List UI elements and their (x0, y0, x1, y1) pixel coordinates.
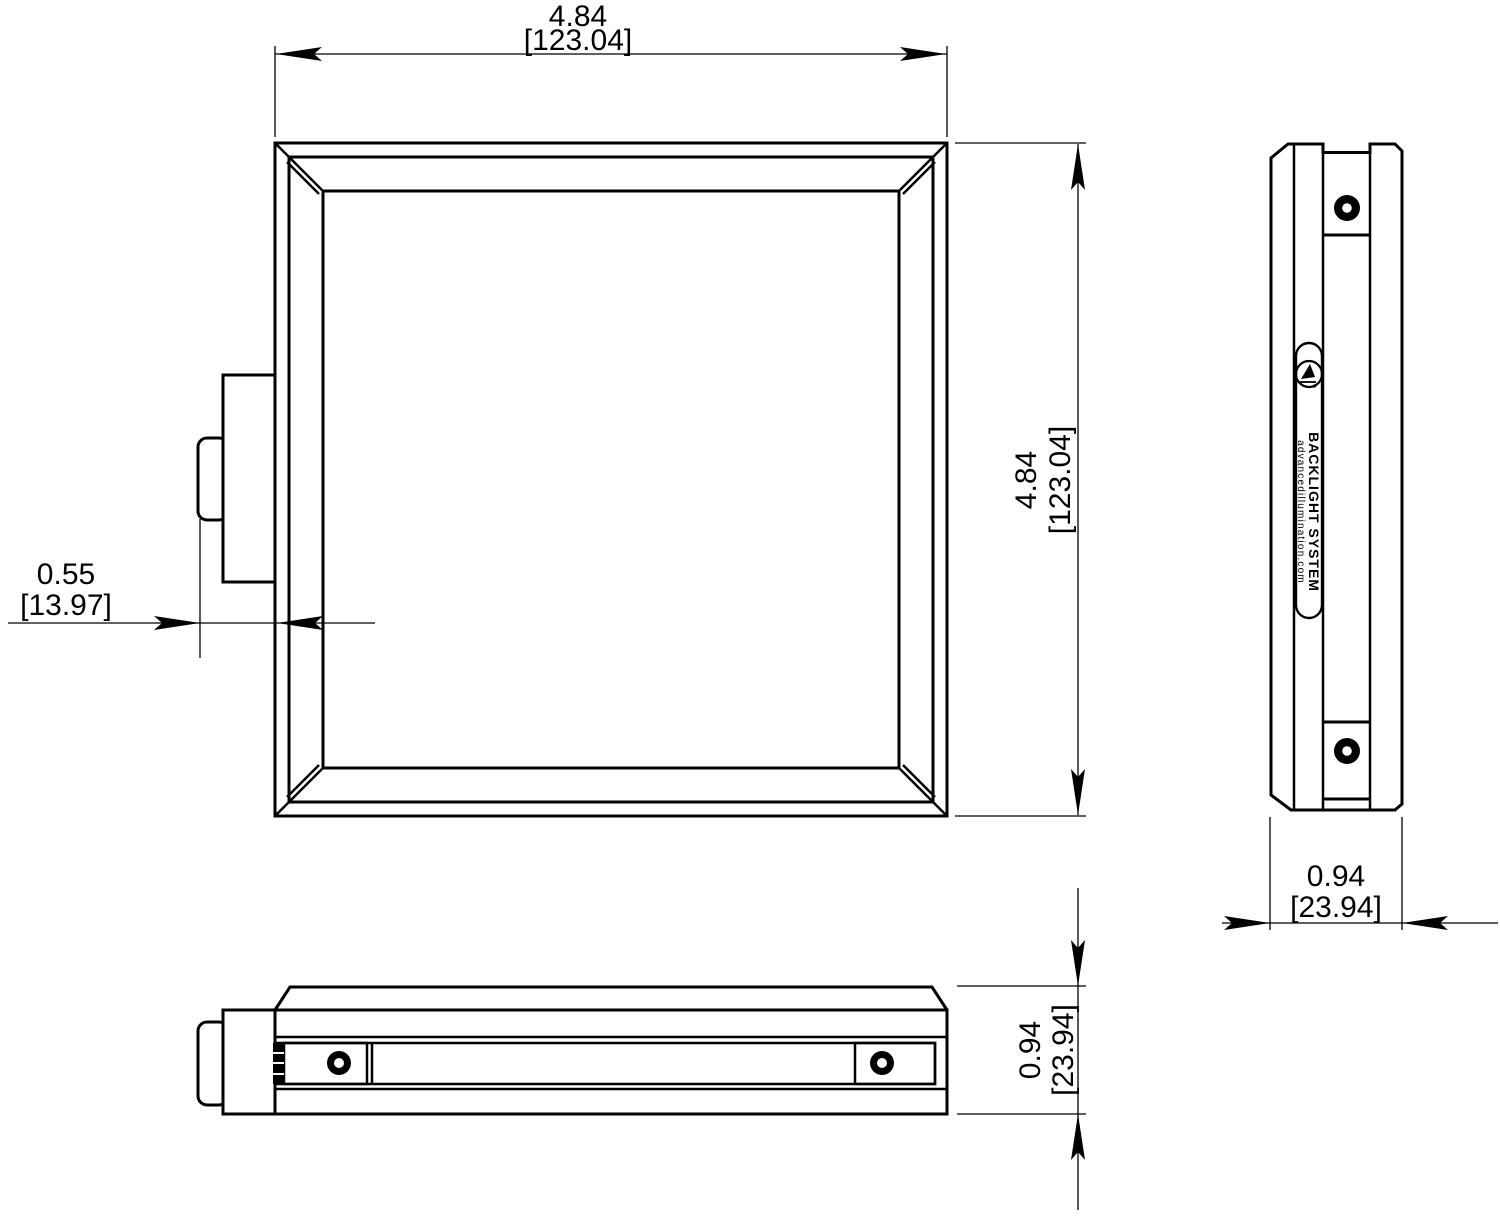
dimension-text-mm: [123.04] (524, 24, 632, 57)
panel-window-edge (323, 191, 899, 768)
brand-logo-icon (1296, 361, 1322, 388)
product-label: BACKLIGHT SYSTEM advancedillumination.co… (1295, 343, 1322, 618)
frame-mitre-lines (276, 144, 946, 815)
panel-outer-edge (275, 143, 947, 816)
bottom-thickness-dimension: 0.94 [23.94] (957, 888, 1086, 1210)
side-view: BACKLIGHT SYSTEM advancedillumination.co… (1271, 144, 1402, 810)
front-view (198, 143, 947, 816)
dimension-text-inches: 0.55 (37, 558, 95, 591)
side-silhouette (1271, 144, 1402, 810)
dimension-text-mm: [13.97] (20, 589, 112, 622)
dimension-text-mm: [23.94] (1047, 1004, 1080, 1096)
label-product-text: BACKLIGHT SYSTEM (1306, 432, 1322, 592)
connector-bracket (223, 375, 275, 582)
height-dimension: 4.84 [123.04] (955, 143, 1086, 816)
screw-icon (1334, 195, 1360, 221)
bottom-view (198, 987, 947, 1114)
connector-bracket (223, 1010, 275, 1114)
right-screw-block (855, 1043, 935, 1084)
screw-icon (1334, 738, 1360, 764)
connector-offset-dimension: 0.55 [13.97] (8, 519, 375, 658)
panel-bevel-edge (289, 157, 933, 802)
chamfered-back-edge (275, 987, 947, 1010)
dimension-drawing: BACKLIGHT SYSTEM advancedillumination.co… (0, 0, 1500, 1216)
dimension-text-mm: [123.04] (1044, 426, 1077, 534)
screw-icon (870, 1051, 894, 1075)
label-website-text: advancedillumination.com (1295, 440, 1306, 584)
screw-icon (327, 1051, 351, 1075)
threaded-insert (273, 1043, 284, 1084)
dimension-text-inches: 0.94 (1014, 1021, 1047, 1079)
drawing-sheet: BACKLIGHT SYSTEM advancedillumination.co… (0, 0, 1500, 1216)
mounting-channel (277, 1043, 935, 1084)
body-outline (275, 1010, 947, 1114)
dimension-text-inches: 0.94 (1307, 860, 1365, 893)
side-thickness-dimension: 0.94 [23.94] (1222, 817, 1498, 930)
dimension-text-inches: 4.84 (1010, 451, 1043, 509)
dimension-text-mm: [23.94] (1290, 891, 1382, 924)
left-screw-block (284, 1043, 367, 1084)
width-dimension: 4.84 [123.04] (275, 0, 947, 137)
